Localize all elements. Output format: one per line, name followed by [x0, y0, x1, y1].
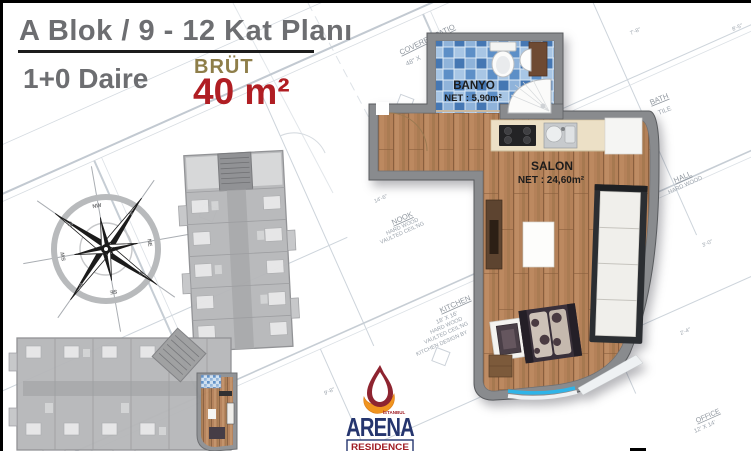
title-underline	[18, 50, 314, 53]
flame-icon	[364, 365, 395, 413]
svg-text:9'-8": 9'-8"	[323, 387, 335, 397]
apartment-plan: BANYO NET : 5,90m²	[353, 23, 668, 413]
unit-type: 1+0 Daire	[23, 63, 148, 95]
kitchen-sink-icon	[544, 123, 577, 148]
stairs	[218, 152, 253, 191]
svg-text:2'-4": 2'-4"	[679, 327, 691, 337]
svg-text:3'-0": 3'-0"	[701, 239, 713, 249]
dresser	[489, 355, 512, 377]
building-wing-vertical	[176, 150, 301, 352]
cooktop-icon	[499, 125, 536, 146]
building-key-plan	[3, 143, 313, 451]
kitchenette	[491, 118, 642, 154]
logo-brand: ARENA	[346, 412, 415, 442]
arena-residence-logo: ARENA İSTANBUL RESIDENCE	[338, 361, 448, 451]
sofa	[589, 184, 647, 344]
gross-area-value: 40 m²	[193, 71, 290, 113]
tv-unit	[486, 200, 502, 269]
floorplan-poster: COVERED PATIO 48" X BATH TILE HALL HARD …	[0, 0, 751, 451]
coffee-table	[523, 222, 554, 267]
svg-text:8'-5": 8'-5"	[731, 23, 743, 33]
logo-residence: RESIDENCE	[351, 442, 409, 451]
bathroom-net-area: NET : 5,90m²	[444, 93, 502, 104]
toilet-icon	[490, 42, 516, 77]
salon-name: SALON	[531, 159, 573, 173]
bathroom: BANYO NET : 5,90m²	[436, 41, 563, 119]
page-title: A Blok / 9 - 12 Kat Planı	[19, 15, 353, 48]
salon-net-area: NET : 24,60m²	[518, 175, 585, 186]
logo-tagline: İSTANBUL	[383, 409, 406, 415]
bathroom-name: BANYO	[453, 80, 495, 92]
highlighted-unit	[197, 373, 237, 451]
